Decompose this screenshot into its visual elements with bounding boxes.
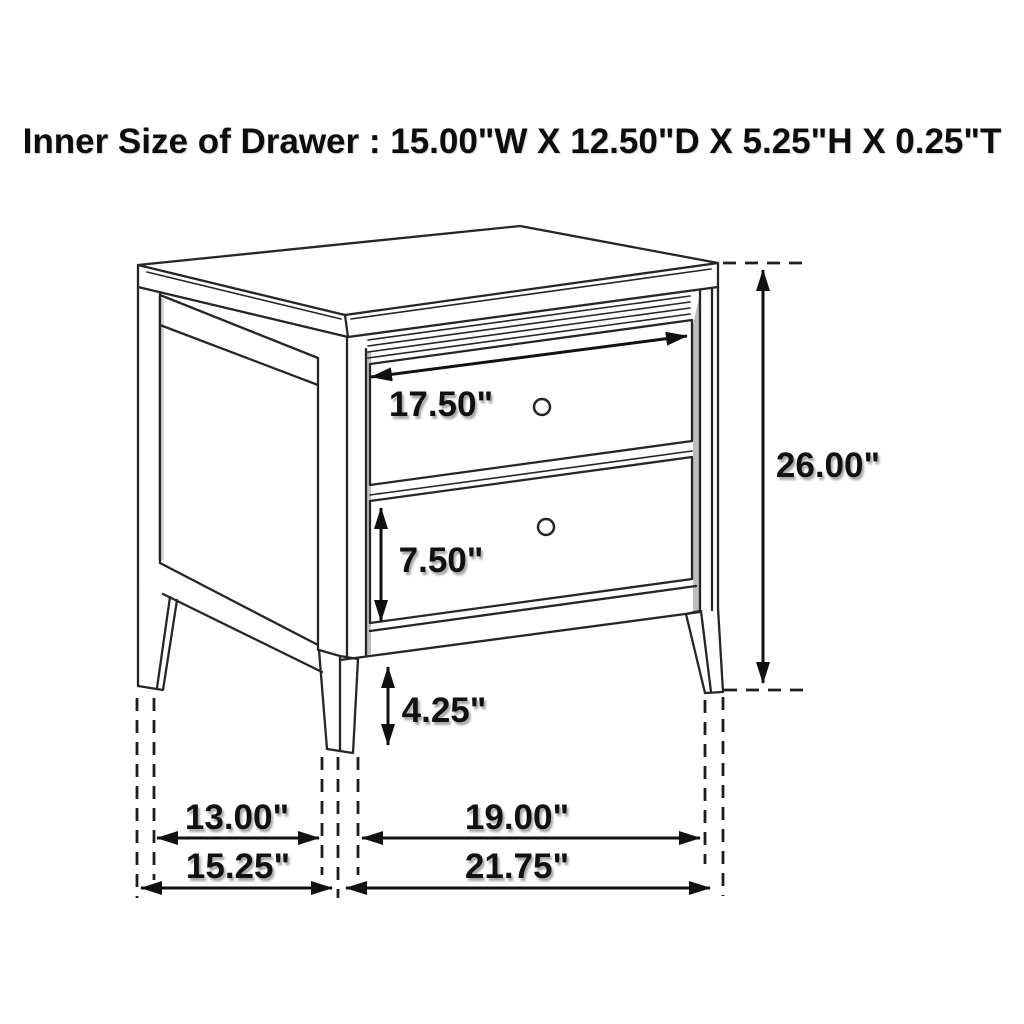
center-leg-extension-lines: [322, 757, 358, 898]
right-front-leg: [686, 608, 723, 693]
drawer-bottom-knob: [538, 519, 554, 535]
label-side-overall-depth: 15.25": [186, 847, 290, 886]
label-front-leg-spacing: 19.00": [465, 798, 569, 837]
label-leg-height: 4.25": [402, 691, 487, 730]
drawer-top-knob: [534, 399, 550, 415]
side-panel-lines: [138, 287, 366, 672]
tabletop-top-face: [138, 226, 718, 315]
right-leg-extension-lines: [705, 697, 723, 896]
drawer-bottom-face: [370, 457, 692, 623]
nightstand-diagram: 17.50" 26.00" 7.50" 4.25" 13.00" 19.00" …: [0, 0, 1024, 1024]
center-front-leg: [319, 650, 358, 753]
label-lower-drawer-height: 7.50": [399, 541, 484, 580]
label-front-overall-width: 21.75": [465, 847, 569, 886]
label-drawer-width: 17.50": [389, 385, 493, 424]
label-overall-height: 26.00": [776, 446, 880, 485]
left-leg-extension-lines: [137, 698, 154, 898]
diagram-page: Inner Size of Drawer : 15.00"W X 12.50"D…: [0, 0, 1024, 1024]
left-front-leg: [138, 592, 177, 690]
nightstand-line-art: [138, 226, 723, 753]
label-side-leg-spacing: 13.00": [185, 798, 289, 837]
